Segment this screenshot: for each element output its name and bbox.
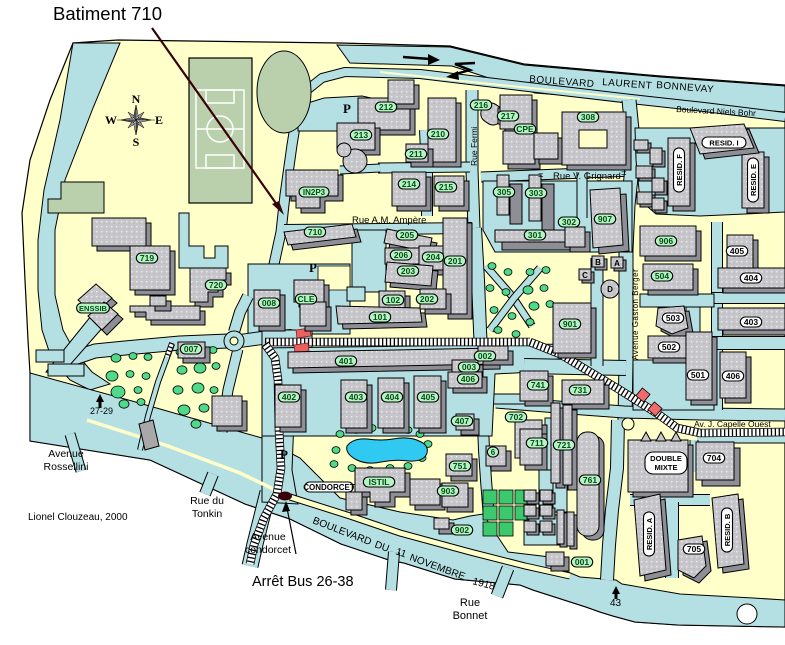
svg-text:Avenue: Avenue xyxy=(250,531,286,543)
svg-text:IN2P3: IN2P3 xyxy=(303,188,326,197)
svg-text:003: 003 xyxy=(462,362,476,372)
svg-text:203: 203 xyxy=(401,266,415,276)
svg-text:RESID. A: RESID. A xyxy=(645,517,654,550)
svg-text:101: 101 xyxy=(373,312,387,322)
svg-text:RESID. E: RESID. E xyxy=(749,164,758,196)
svg-text:204: 204 xyxy=(426,252,440,262)
svg-text:206: 206 xyxy=(394,250,408,260)
svg-text:201: 201 xyxy=(448,256,462,266)
svg-text:711: 711 xyxy=(530,438,544,448)
svg-text:205: 205 xyxy=(400,230,414,240)
svg-text:504: 504 xyxy=(655,271,669,281)
svg-text:901: 901 xyxy=(563,319,577,329)
svg-text:condorcet: condorcet xyxy=(245,544,291,556)
svg-text:=: = xyxy=(538,170,544,181)
svg-text:405: 405 xyxy=(421,392,435,402)
svg-text:705: 705 xyxy=(687,544,701,554)
svg-text:217: 217 xyxy=(501,111,515,121)
svg-text:303: 303 xyxy=(529,188,543,198)
svg-text:Rue A.M. Ampère: Rue A.M. Ampère xyxy=(352,215,426,226)
svg-text:102: 102 xyxy=(386,295,400,305)
svg-text:CLE: CLE xyxy=(298,294,315,304)
svg-text:MIXTE: MIXTE xyxy=(655,463,678,472)
svg-text:406: 406 xyxy=(726,371,740,381)
svg-text:721: 721 xyxy=(557,440,571,450)
svg-text:907: 907 xyxy=(598,214,612,224)
svg-text:Avenue Gaston Berger: Avenue Gaston Berger xyxy=(631,269,640,360)
svg-text:A: A xyxy=(614,259,620,268)
svg-text:214: 214 xyxy=(402,179,416,189)
svg-text:S: S xyxy=(133,135,140,149)
svg-text:404: 404 xyxy=(744,273,758,283)
svg-text:211: 211 xyxy=(409,149,423,159)
svg-text:215: 215 xyxy=(439,182,453,192)
svg-text:Lionel Clouzeau, 2000: Lionel Clouzeau, 2000 xyxy=(28,512,128,523)
svg-text:CPE: CPE xyxy=(516,124,534,134)
svg-text:741: 741 xyxy=(531,380,545,390)
svg-text:401: 401 xyxy=(339,356,353,366)
svg-text:501: 501 xyxy=(691,370,705,380)
svg-text:P: P xyxy=(343,101,351,116)
svg-text:Rue V. Grignard: Rue V. Grignard xyxy=(553,171,621,182)
svg-text:403: 403 xyxy=(349,392,363,402)
svg-text:RESID. B: RESID. B xyxy=(723,513,732,546)
svg-text:Batiment 710: Batiment 710 xyxy=(53,3,162,24)
svg-text:Rue: Rue xyxy=(460,597,480,609)
svg-text:002: 002 xyxy=(478,351,492,361)
svg-text:CONDORCET: CONDORCET xyxy=(303,483,355,492)
svg-text:RESID. I: RESID. I xyxy=(709,139,738,148)
svg-text:301: 301 xyxy=(528,230,542,240)
svg-text:407: 407 xyxy=(455,416,469,426)
svg-text:E: E xyxy=(155,113,163,127)
svg-text:Arrêt Bus 26-38: Arrêt Bus 26-38 xyxy=(252,574,354,590)
svg-text:Avenue: Avenue xyxy=(48,448,84,460)
svg-text:008: 008 xyxy=(262,298,276,308)
svg-text:902: 902 xyxy=(455,525,469,535)
svg-text:405: 405 xyxy=(730,246,744,256)
svg-text:403: 403 xyxy=(744,317,758,327)
svg-text:P: P xyxy=(280,447,288,462)
svg-text:704: 704 xyxy=(707,453,721,463)
svg-text:Tonkin: Tonkin xyxy=(192,508,223,520)
svg-text:213: 213 xyxy=(354,130,368,140)
svg-text:27-29: 27-29 xyxy=(90,406,113,416)
svg-text:Av. J. Capelle Ouest: Av. J. Capelle Ouest xyxy=(694,419,771,429)
svg-text:Rue Fermi: Rue Fermi xyxy=(469,126,479,166)
svg-text:ISTIL: ISTIL xyxy=(369,477,390,487)
svg-text:P: P xyxy=(309,260,317,275)
svg-text:Bonnet: Bonnet xyxy=(453,610,488,622)
svg-text:719: 719 xyxy=(140,253,154,263)
svg-text:402: 402 xyxy=(282,392,296,402)
svg-text:W: W xyxy=(105,113,117,127)
svg-text:751: 751 xyxy=(453,461,467,471)
svg-text:302: 302 xyxy=(562,217,576,227)
svg-text:210: 210 xyxy=(431,129,445,139)
svg-text:702: 702 xyxy=(509,412,523,422)
svg-text:305: 305 xyxy=(497,187,511,197)
svg-text:=: = xyxy=(621,168,627,179)
svg-text:B: B xyxy=(595,258,601,267)
svg-text:406: 406 xyxy=(461,374,475,384)
svg-text:503: 503 xyxy=(666,313,680,323)
svg-text:903: 903 xyxy=(441,486,455,496)
svg-text:Rossellini: Rossellini xyxy=(44,461,89,473)
svg-text:731: 731 xyxy=(573,385,587,395)
svg-text:ENSSIB: ENSSIB xyxy=(79,304,108,313)
svg-text:906: 906 xyxy=(659,236,673,246)
svg-text:DOUBLE: DOUBLE xyxy=(650,454,682,463)
svg-text:D: D xyxy=(607,285,613,294)
svg-text:710: 710 xyxy=(308,227,322,237)
svg-text:404: 404 xyxy=(385,392,399,402)
svg-text:C: C xyxy=(582,271,588,280)
svg-text:007: 007 xyxy=(184,344,198,354)
svg-text:761: 761 xyxy=(583,475,597,485)
svg-text:216: 216 xyxy=(474,100,488,110)
svg-text:N: N xyxy=(132,92,141,106)
svg-text:502: 502 xyxy=(662,342,676,352)
svg-text:RESID. F: RESID. F xyxy=(675,154,684,186)
svg-text:720: 720 xyxy=(209,280,223,290)
svg-text:001: 001 xyxy=(575,557,589,567)
svg-text:202: 202 xyxy=(420,294,434,304)
svg-text:6: 6 xyxy=(491,448,496,457)
svg-text:212: 212 xyxy=(379,102,393,112)
svg-text:43: 43 xyxy=(610,598,622,609)
svg-text:308: 308 xyxy=(581,112,595,122)
svg-text:Rue du: Rue du xyxy=(190,495,224,507)
